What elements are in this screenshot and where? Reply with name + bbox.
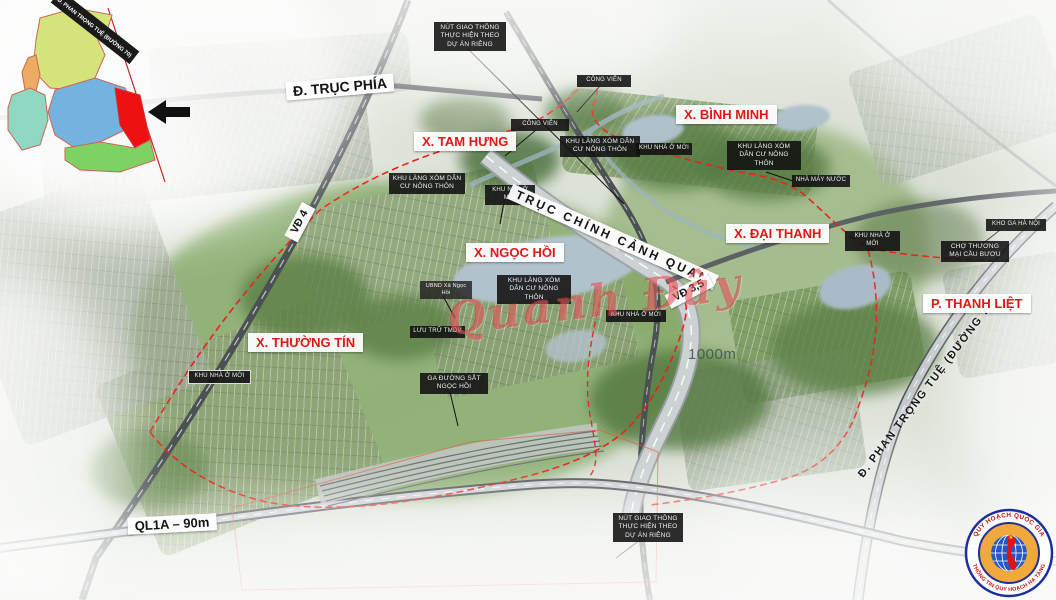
area-label-thuong-tin: X. THƯỜNG TÍN [248, 333, 363, 352]
poi-label-water-plant: NHÀ MÁY NƯỚC [792, 175, 850, 187]
road-boulevard-centerline [486, 156, 691, 520]
poi-label-village-c: KHU LÀNG XÓM DÂN CƯ NÔNG THÔN [389, 173, 465, 194]
poi-label-village-b: KHU LÀNG XÓM DÂN CƯ NÔNG THÔN [727, 141, 801, 170]
poi-label-park-b: CÔNG VIÊN [577, 75, 631, 87]
poi-label-railway-station: GA ĐƯỜNG SẮT NGỌC HỒI [420, 373, 488, 394]
inset-zone-red [115, 88, 150, 148]
area-label-tam-hung: X. TAM HƯNG [414, 132, 516, 151]
poi-label-hanoi-depot: KHO GA HÀ NỘI [986, 219, 1046, 231]
inset-zone-yellow [33, 8, 112, 90]
poi-label-new-housing-e: KHU NHÀ Ở MỚI [188, 370, 251, 384]
area-label-ngoc-hoi: X. NGỌC HỒI [466, 243, 564, 262]
poi-label-village-a: KHU LÀNG XÓM DÂN CƯ NÔNG THÔN [560, 136, 640, 157]
agency-logo: QUY HOẠCH QUỐC GIA THÔNG TIN QUY HOẠCH H… [962, 506, 1056, 600]
area-label-thanh-liet: P. THANH LIỆT [923, 294, 1031, 313]
road-boulevard [486, 156, 691, 520]
poi-label-new-housing-a: KHU NHÀ Ở MỚI [636, 143, 692, 155]
area-label-dai-thanh: X. ĐẠI THANH [726, 224, 829, 243]
inset-zone-teal [8, 88, 48, 150]
area-label-binh-minh: X. BÌNH MINH [676, 105, 777, 124]
road-boulevard-edge [486, 156, 691, 520]
scale-text: 1000m [688, 346, 736, 363]
poi-label-interchange-bottom: NÚT GIAO THÔNG THỰC HIỆN THEO DỰ ÁN RIÊN… [613, 513, 683, 542]
poi-label-park-a: CÔNG VIÊN [511, 119, 569, 131]
poi-label-market: CHỢ THƯƠNG MẠI CẦU BƯƠU [941, 241, 1009, 262]
poi-label-interchange-top: NÚT GIAO THÔNG THỰC HIỆN THEO DỰ ÁN RIÊN… [434, 22, 506, 51]
planning-map: Đ. PHAN TRỌNG TUỆ (ĐƯỜNG 70) X. TAM HƯNG… [0, 0, 1056, 600]
arrow-left-icon [148, 100, 190, 124]
poi-label-new-housing-c: KHU NHÀ Ở MỚI [845, 231, 900, 251]
inset-locator-map: Đ. PHAN TRỌNG TUỆ (ĐƯỜNG 70) [0, 0, 205, 190]
haze-patch [700, 430, 960, 590]
